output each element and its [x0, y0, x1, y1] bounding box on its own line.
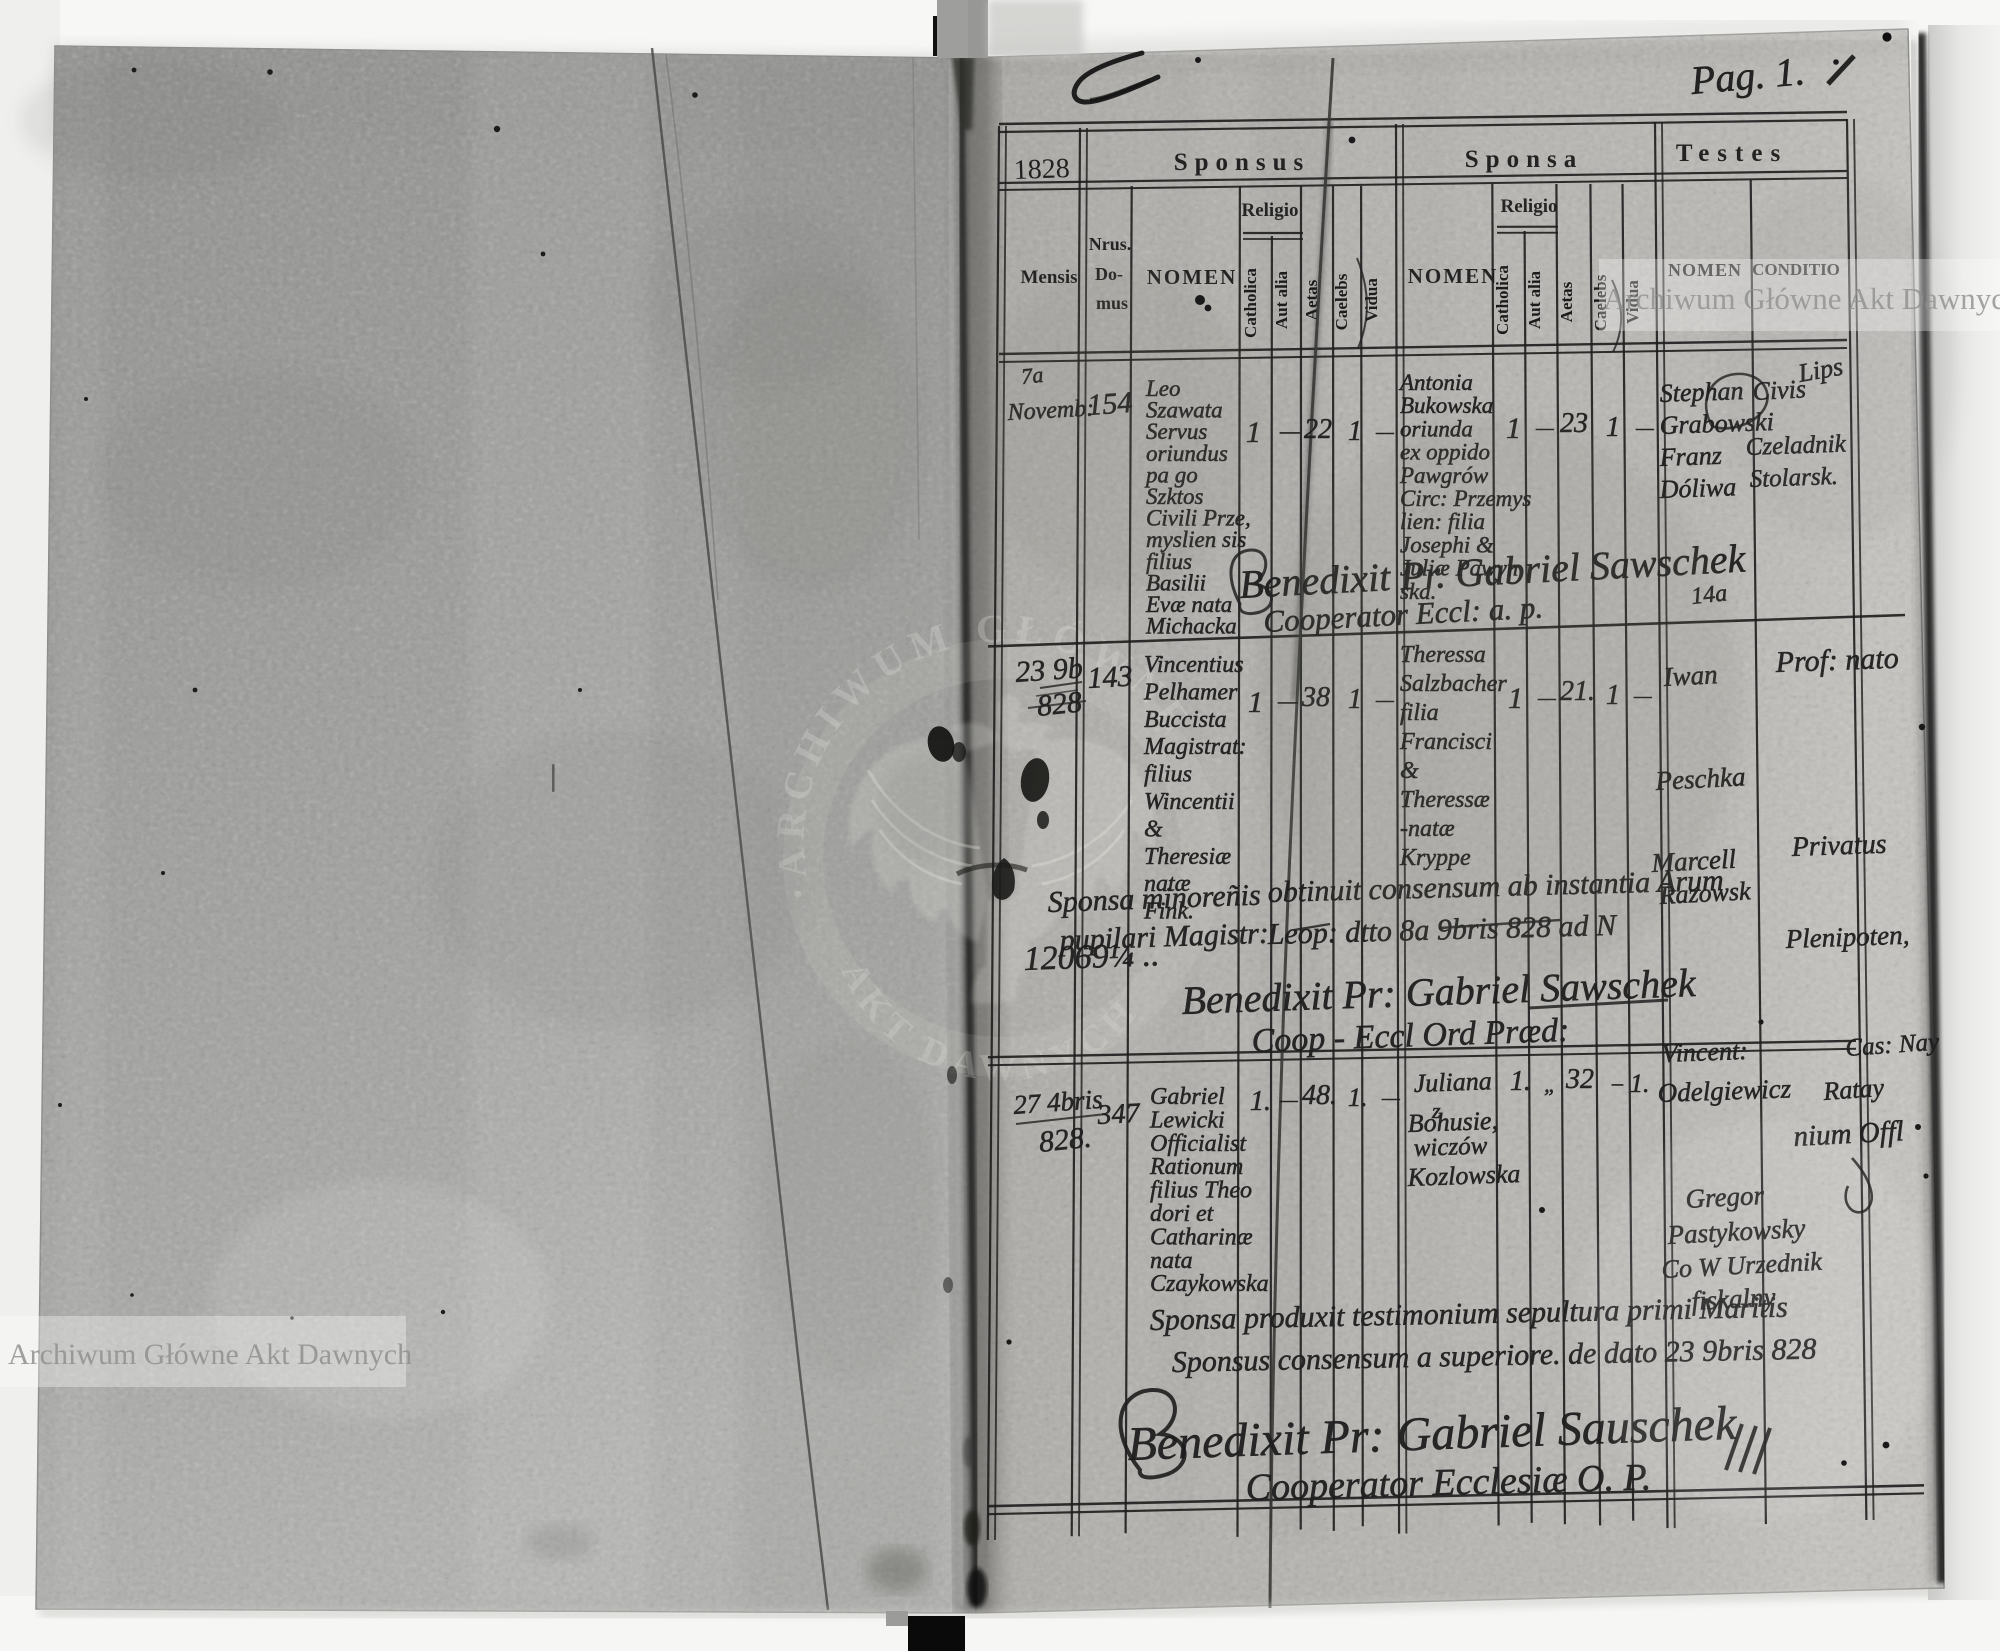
svg-text:Bukowska: Bukowska [1400, 393, 1493, 418]
svg-text:Ratay: Ratay [1821, 1073, 1885, 1106]
svg-text:1: 1 [1348, 416, 1362, 447]
svg-text:Caelebs: Caelebs [1332, 273, 1351, 330]
svg-text:Aut alia: Aut alia [1525, 270, 1544, 329]
svg-text:Vincent:: Vincent: [1661, 1036, 1748, 1068]
svg-text:Gabriel: Gabriel [1150, 1084, 1225, 1110]
svg-text:Juliana: Juliana [1413, 1066, 1492, 1098]
svg-text:&: & [1144, 816, 1163, 842]
svg-text:Michacka: Michacka [1145, 614, 1237, 639]
svg-text:Testes: Testes [1676, 140, 1788, 167]
svg-text:Catholica: Catholica [1493, 265, 1512, 335]
svg-text:Lewicki: Lewicki [1149, 1107, 1225, 1133]
svg-text:Franz: Franz [1658, 441, 1722, 472]
svg-text:–: – [1611, 1070, 1624, 1095]
svg-text:32: 32 [1565, 1064, 1594, 1095]
svg-text:Aut alia: Aut alia [1272, 270, 1291, 329]
svg-text:Nrus.: Nrus. [1089, 234, 1132, 254]
svg-text:1.: 1. [1510, 1066, 1531, 1097]
svg-text:Plenipoten,: Plenipoten, [1784, 920, 1910, 954]
svg-text:dori et: dori et [1150, 1201, 1215, 1227]
svg-text:Catharinæ: Catharinæ [1150, 1224, 1253, 1250]
svg-text:Privatus: Privatus [1790, 829, 1887, 863]
svg-text:27 4bris: 27 4bris [1012, 1084, 1103, 1120]
svg-text:filius Theo: filius Theo [1150, 1178, 1252, 1204]
svg-text:Antonia: Antonia [1398, 370, 1473, 395]
svg-text:Magistrat:: Magistrat: [1143, 734, 1247, 760]
svg-text:Czaykowska: Czaykowska [1150, 1271, 1269, 1297]
svg-text:347: 347 [1096, 1098, 1142, 1131]
svg-text:Theresiæ: Theresiæ [1144, 844, 1231, 870]
svg-text:1.: 1. [1630, 1069, 1650, 1098]
svg-text:Odelgiewicz: Odelgiewicz [1657, 1073, 1792, 1108]
svg-text:—: — [1279, 418, 1300, 443]
svg-text:Wincentii: Wincentii [1144, 789, 1235, 815]
svg-text:„: „ [1544, 1072, 1556, 1097]
svg-text:22: 22 [1304, 414, 1332, 445]
svg-text:Buccista: Buccista [1144, 707, 1227, 733]
svg-text:Archiwum Główne Akt Dawnych: Archiwum Główne Akt Dawnych [8, 1338, 412, 1371]
svg-text:828.: 828. [1037, 1121, 1093, 1159]
svg-text:1828: 1828 [1013, 153, 1070, 186]
svg-text:Religio: Religio [1242, 200, 1299, 221]
svg-text:Archiwum Główne Akt Dawnych: Archiwum Główne Akt Dawnych [1603, 281, 2000, 316]
svg-text:NOMEN: NOMEN [1408, 264, 1499, 288]
svg-text:Religio: Religio [1501, 196, 1558, 217]
svg-text:Sponsus: Sponsus [1174, 149, 1311, 176]
svg-text:Kozlowska: Kozlowska [1406, 1159, 1521, 1192]
svg-text:—: — [1279, 1089, 1298, 1111]
svg-text:Prof: nato: Prof: nato [1774, 642, 1899, 679]
svg-text:Officialist: Officialist [1150, 1131, 1247, 1157]
svg-text:—: — [1375, 421, 1394, 443]
svg-text:wiczów: wiczów [1413, 1132, 1488, 1162]
svg-text:48.: 48. [1302, 1080, 1337, 1111]
svg-text:Catholica: Catholica [1241, 268, 1260, 338]
svg-text:1.: 1. [1250, 1086, 1271, 1117]
svg-text:Dóliwa: Dóliwa [1658, 472, 1737, 504]
svg-text:Vincentius: Vincentius [1144, 652, 1244, 678]
svg-text:Rationum: Rationum [1149, 1154, 1243, 1180]
svg-text:—: — [1381, 1087, 1400, 1109]
svg-text:143: 143 [1087, 660, 1134, 695]
svg-text:—: — [1635, 417, 1654, 439]
svg-text:1.: 1. [1348, 1083, 1368, 1112]
svg-text:1: 1 [1606, 412, 1620, 443]
svg-text:12069¼ ..: 12069¼ .. [1023, 936, 1160, 978]
svg-text:nata: nata [1150, 1248, 1193, 1274]
svg-text:filius: filius [1144, 762, 1192, 788]
svg-text:Aetas: Aetas [1557, 281, 1576, 322]
svg-text:Sponsa: Sponsa [1465, 146, 1583, 173]
svg-text:Pelhamer: Pelhamer [1143, 679, 1238, 705]
